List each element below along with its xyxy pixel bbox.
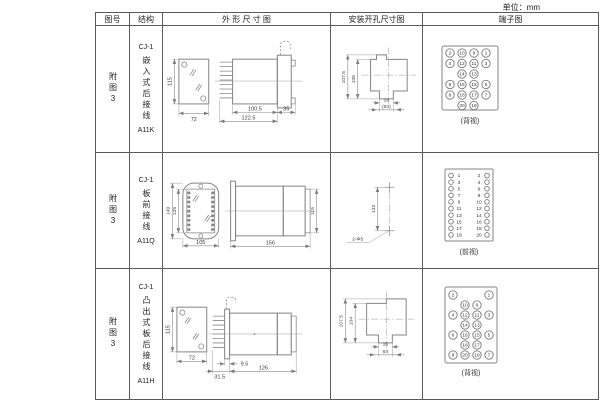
header-mounting: 安装开孔尺寸图 (331, 13, 423, 26)
dim-flange-depth: 35 (283, 106, 289, 112)
dim-front-w: 72 (191, 117, 197, 123)
terminal-num: 4 (452, 313, 455, 319)
mounting-cell-a11h: 107.5 104 16 64 (331, 269, 423, 399)
terminal-num: 8 (452, 353, 455, 359)
dim-total-depth: 122.5 (242, 115, 256, 121)
dim-pin-depth: 31.5 (214, 375, 225, 381)
terminal-block: 2 1 10 9 4 12 11 3 14 13 6 16 15 5 18 17 (445, 287, 497, 377)
terminal-num: 15 (471, 82, 477, 88)
structure-cell-a11q: CJ-1 板前接线 A11Q (130, 153, 163, 269)
dim-body-depth: 156 (266, 240, 275, 246)
fig-no-a11q: 附图3 (109, 194, 117, 228)
header-fig-no: 图号 (96, 13, 130, 26)
terminal-num: 17 (471, 93, 477, 99)
header-structure: 结构 (130, 13, 163, 26)
terminal-num: 1 (488, 293, 491, 299)
terminal-num: 10 (462, 303, 468, 309)
terminal-num: 10 (459, 51, 465, 57)
structure-cell-a11h: CJ-1 凸出式板后接线 A11H (130, 269, 163, 399)
terminal-num: 6 (449, 82, 452, 88)
dim-body-depth: 126 (259, 365, 268, 371)
outline-drawing-a11q: 149 125 105 156 115 (163, 153, 330, 269)
terminal-block: 1 2 3 4 5 6 7 8 9 10 11 12 13 14 15 16 1 (445, 169, 493, 256)
mounting-drawing-a11q: 133 2-Φ5 (331, 153, 422, 269)
mounting-cell-a11k: 107.5 105 16 (64) (331, 26, 423, 153)
terminal-diagram-a11h: 2 1 10 9 4 12 11 3 14 13 6 16 15 5 18 17 (423, 269, 598, 398)
dim-body-depth: 100.5 (248, 106, 262, 112)
mounting-cutout: 107.5 104 16 64 (339, 291, 414, 356)
outline-cell-a11h: 115 72 9.5 (163, 269, 331, 399)
terminal-num: 18 (459, 93, 465, 99)
terminal-num: 13 (456, 213, 462, 219)
dim-holes-label: 2-Φ5 (352, 237, 363, 243)
dim-inner-h: 125 (172, 207, 178, 216)
terminal-num: 17 (474, 343, 480, 349)
model-a11k: CJ-1 (139, 44, 154, 51)
terminal-num: 16 (462, 333, 468, 339)
mounting-cutout: 107.5 105 16 (64) (341, 47, 416, 111)
terminal-num: 12 (459, 61, 465, 67)
terminal-num: 14 (459, 72, 465, 78)
terminal-num: 5 (485, 82, 488, 88)
outline-drawing-a11h: 115 72 9.5 (163, 269, 330, 398)
header-terminal: 端子图 (423, 13, 598, 26)
mounting-cell-a11q: 133 2-Φ5 (331, 153, 423, 269)
fig-no-cell-a11h: 附图3 (96, 269, 130, 399)
front-view: 115 72 (167, 59, 208, 123)
terminal-num: 6 (452, 333, 455, 339)
terminal-num: 12 (476, 206, 482, 212)
terminal-num: 19 (471, 103, 477, 109)
side-view: 156 115 (225, 181, 319, 249)
dim-slot-w: 16 (383, 341, 389, 347)
terminal-num: 20 (476, 233, 482, 239)
terminal-num: 20 (462, 353, 468, 359)
dim-bottom-w: (64) (382, 104, 391, 110)
terminal-diagram-a11k: 2 10 9 1 4 12 11 3 14 13 6 16 15 5 8 18 (423, 26, 598, 153)
terminal-block: 2 10 9 1 4 12 11 3 14 13 6 16 15 5 8 18 (442, 46, 498, 125)
dim-outer-h: 149 (166, 207, 172, 216)
code-a11k: A11K (138, 127, 155, 134)
terminal-num: 17 (456, 226, 462, 232)
terminal-cell-a11h: 2 1 10 9 4 12 11 3 14 13 6 16 15 5 18 17 (423, 269, 598, 399)
mount-type-a11k: 嵌入式后接线 (142, 56, 150, 122)
model-a11h: CJ-1 (139, 284, 154, 291)
terminal-num: 13 (474, 323, 480, 329)
dim-front-w: 72 (189, 356, 195, 362)
terminal-num: 11 (457, 206, 462, 212)
terminal-caption-a11k: (背视) (461, 116, 480, 125)
fig-no-cell-a11q: 附图3 (96, 153, 130, 269)
front-view: 149 125 105 (166, 183, 219, 248)
dim-bottom-w: 64 (383, 349, 389, 355)
terminal-num: 11 (475, 313, 480, 319)
dim-front-w: 105 (196, 240, 205, 246)
page: 单位：mm 图号 结构 外 形 尺 寸 图 安装开孔尺寸图 端子图 附图3 CJ… (0, 0, 600, 400)
terminal-num: 15 (456, 219, 462, 225)
terminal-num: 18 (476, 226, 482, 232)
terminal-num: 2 (449, 51, 452, 57)
terminal-num: 8 (478, 193, 481, 199)
terminal-num: 19 (456, 233, 462, 239)
spec-table: 图号 结构 外 形 尺 寸 图 安装开孔尺寸图 端子图 附图3 CJ-1 嵌入式… (95, 12, 599, 400)
terminal-num: 9 (458, 200, 461, 206)
terminal-num: 6 (478, 186, 481, 192)
terminal-num: 12 (462, 313, 468, 319)
terminal-diagram-a11q: 1 2 3 4 5 6 7 8 9 10 11 12 13 14 15 16 1 (423, 153, 598, 269)
terminal-num: 14 (476, 213, 482, 219)
structure-cell-a11k: CJ-1 嵌入式后接线 A11K (130, 26, 163, 153)
dim-flange-t: 9.5 (241, 362, 249, 368)
terminal-num: 5 (458, 186, 461, 192)
terminal-num: 13 (471, 72, 477, 78)
model-a11q: CJ-1 (139, 177, 154, 184)
terminal-num: 8 (449, 93, 452, 99)
terminal-caption-a11q: (前视) (460, 247, 479, 256)
terminal-num: 9 (476, 303, 479, 309)
mount-type-a11q: 板前接线 (142, 189, 150, 233)
dim-slot-w: 16 (384, 97, 390, 103)
dim-front-h: 115 (166, 325, 172, 334)
terminal-num: 7 (488, 353, 491, 359)
terminal-caption-a11h: (背视) (462, 368, 481, 377)
dim-inner-h: 104 (349, 317, 355, 325)
dim-hole-pitch: 133 (371, 205, 377, 213)
terminal-num: 15 (474, 333, 480, 339)
dim-outer-h: 107.5 (339, 315, 345, 328)
terminal-num: 19 (474, 353, 480, 359)
terminal-num: 16 (476, 219, 482, 225)
side-view: 9.5 31.5 126 (206, 297, 302, 381)
code-a11h: A11H (138, 378, 155, 385)
terminal-num: 16 (459, 82, 465, 88)
code-a11q: A11Q (137, 238, 154, 245)
terminal-num: 7 (458, 193, 461, 199)
terminal-num: 5 (488, 333, 491, 339)
terminal-num: 7 (485, 93, 488, 99)
header-outline: 外 形 尺 寸 图 (163, 13, 331, 26)
terminal-num: 3 (458, 180, 461, 186)
outline-cell-a11q: 149 125 105 156 115 (163, 153, 331, 269)
mounting-drawing-a11k: 107.5 105 16 (64) (331, 26, 422, 153)
terminal-num: 4 (478, 180, 481, 186)
terminal-num: 1 (485, 51, 488, 57)
fig-no-a11h: 附图3 (109, 317, 117, 351)
terminal-num: 10 (476, 200, 482, 206)
terminal-num: 2 (478, 173, 481, 179)
mount-type-a11h: 凸出式板后接线 (142, 296, 150, 373)
fig-no-a11k: 附图3 (109, 72, 117, 106)
dim-side-h: 115 (310, 207, 316, 215)
outline-cell-a11k: 115 72 100.5 35 (163, 26, 331, 153)
front-view: 115 72 (166, 307, 207, 364)
terminal-num: 9 (473, 51, 476, 57)
terminal-num: 4 (449, 61, 452, 67)
mounting-drawing-a11h: 107.5 104 16 64 (331, 269, 422, 398)
terminal-num: 2 (452, 293, 455, 299)
terminal-num: 14 (462, 323, 468, 329)
dim-inner-h: 105 (351, 75, 357, 83)
terminal-num: 20 (459, 103, 465, 109)
fig-no-cell-a11k: 附图3 (96, 26, 130, 153)
dim-outer-h: 107.5 (341, 71, 347, 84)
outline-drawing-a11k: 115 72 100.5 35 (163, 26, 330, 153)
terminal-num: 3 (488, 313, 491, 319)
terminal-cell-a11q: 1 2 3 4 5 6 7 8 9 10 11 12 13 14 15 16 1 (423, 153, 598, 269)
mounting-holes: 133 2-Φ5 (347, 182, 394, 242)
terminal-num: 18 (462, 343, 468, 349)
terminal-num: 11 (472, 61, 477, 67)
terminal-cell-a11k: 2 10 9 1 4 12 11 3 14 13 6 16 15 5 8 18 (423, 26, 598, 153)
terminal-num: 3 (485, 61, 488, 67)
dim-front-h: 115 (167, 77, 173, 86)
side-view: 100.5 35 122.5 (215, 41, 302, 124)
terminal-num: 1 (458, 173, 461, 179)
